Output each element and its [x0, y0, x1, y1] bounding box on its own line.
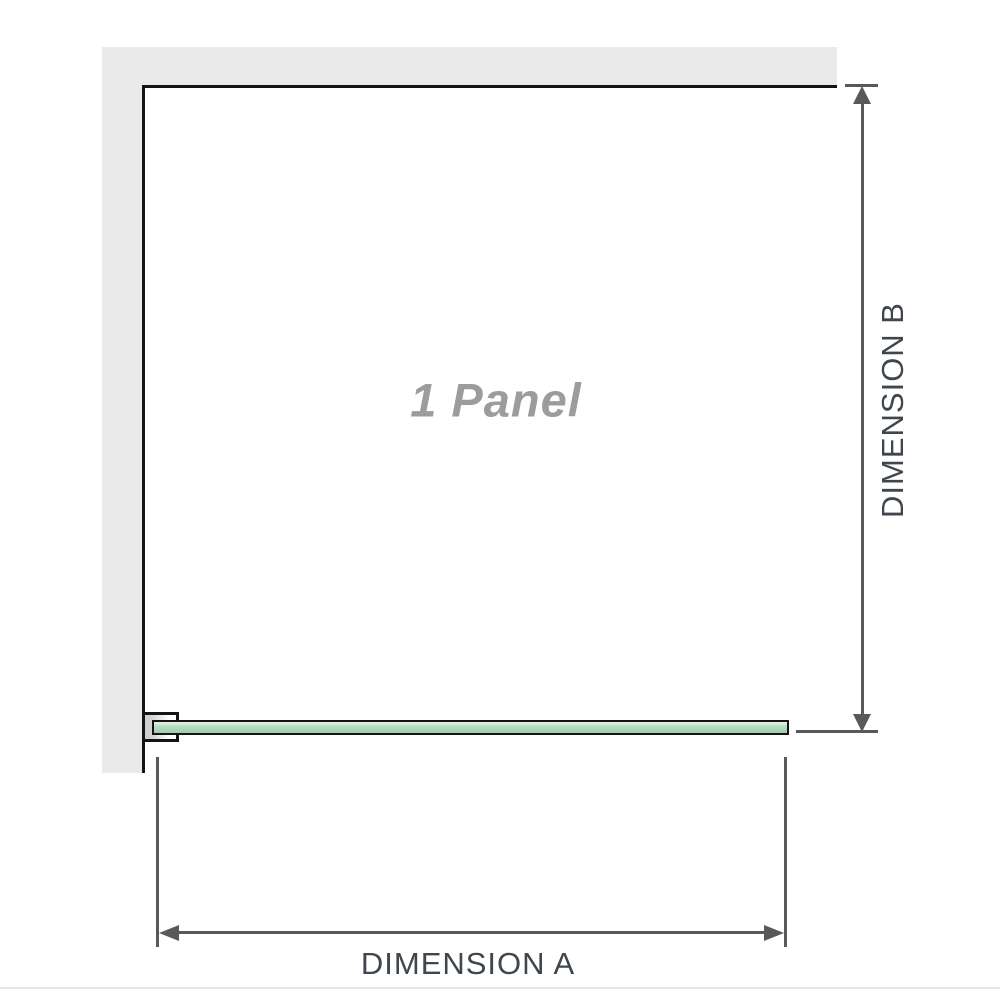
panel-label: 1 Panel — [410, 373, 582, 428]
arrow-right-icon — [764, 925, 784, 941]
dimension-a-label: DIMENSION A — [361, 946, 575, 982]
arrow-up-icon — [853, 86, 871, 104]
arrow-down-icon — [853, 714, 871, 732]
dimension-b-line — [861, 95, 864, 717]
dimension-a-line — [168, 931, 776, 934]
glass-panel-bar — [152, 720, 789, 735]
dimension-a-left-tick — [156, 757, 159, 947]
arrow-left-icon — [159, 925, 179, 941]
panel-outline-left-line — [142, 85, 145, 773]
dimension-a-right-tick — [784, 757, 787, 947]
shower-panel-diagram: 1 Panel DIMENSION B DIMENSION A — [0, 0, 1000, 1000]
bottom-separator-line — [0, 987, 1000, 989]
dimension-b-label: DIMENSION B — [875, 302, 911, 518]
panel-outline-top-line — [142, 85, 837, 88]
wall-left — [102, 47, 142, 773]
wall-top — [102, 47, 837, 85]
